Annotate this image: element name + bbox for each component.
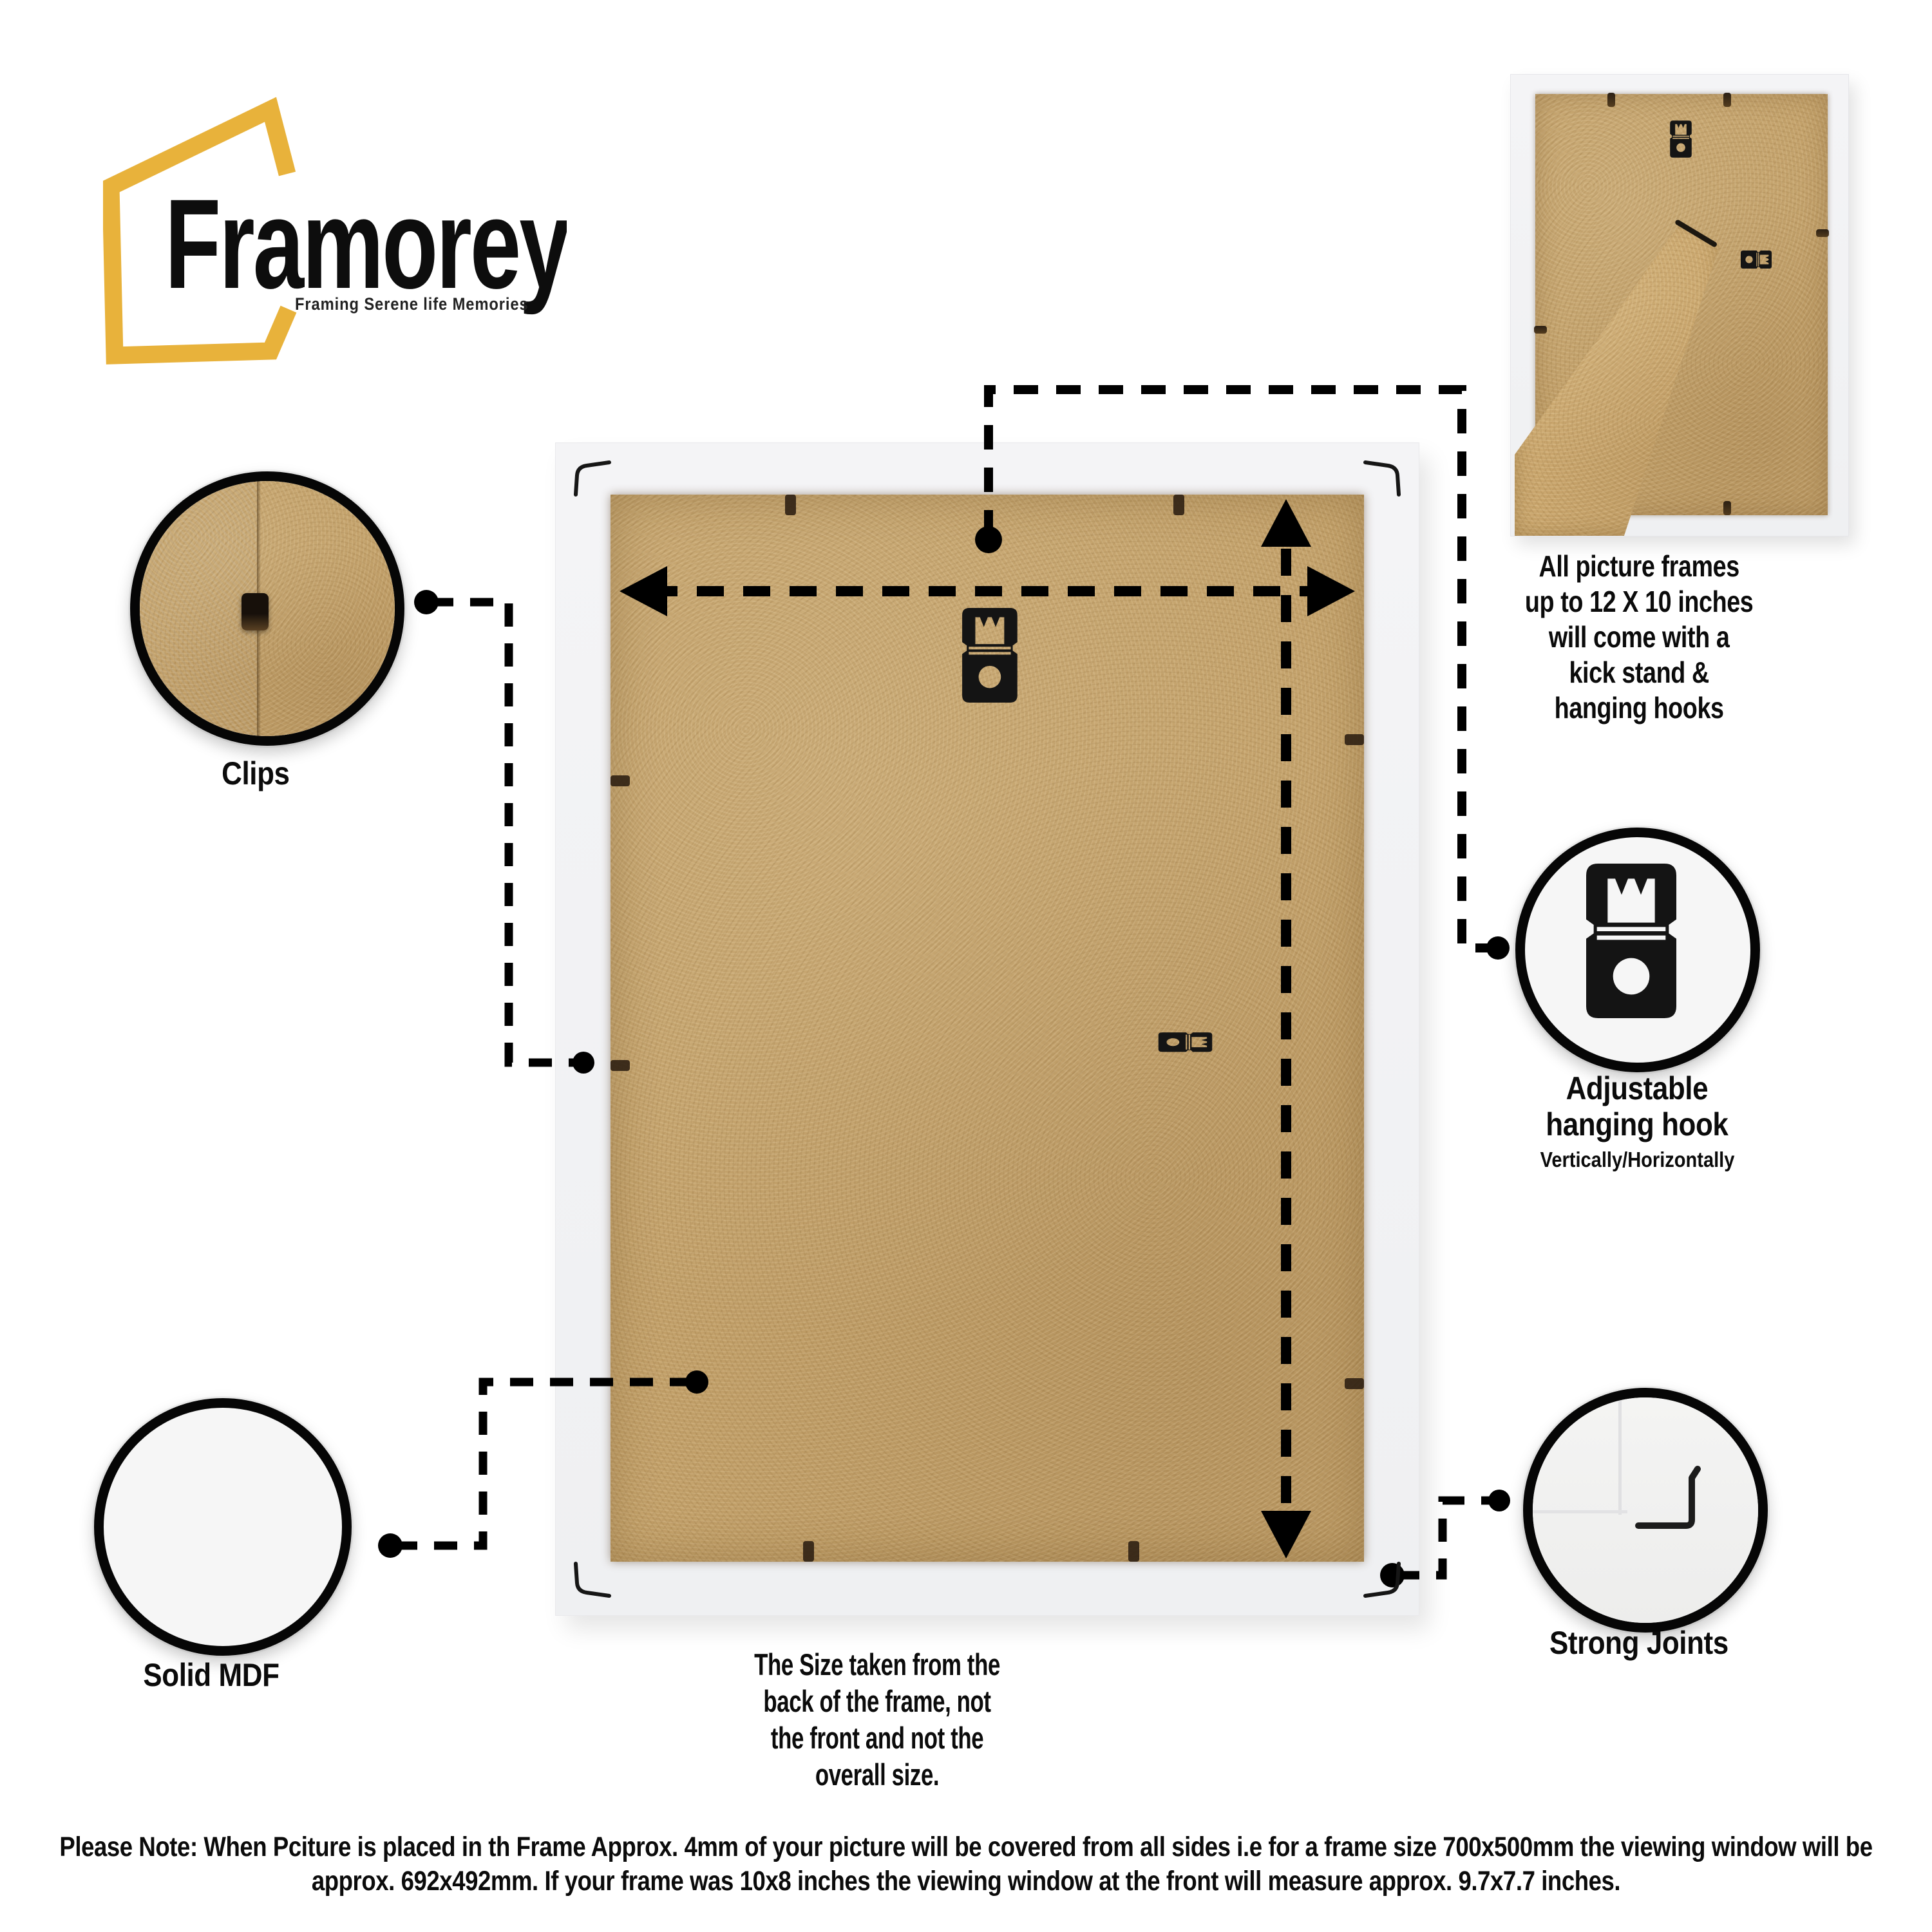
- corner-bracket-bottom-left-icon: [576, 1564, 609, 1596]
- size-note: The Size taken from the back of the fram…: [754, 1646, 1000, 1793]
- connector-strong-joints: [1396, 1501, 1494, 1575]
- clip-icon: [1345, 734, 1364, 745]
- connector-dot: [414, 590, 439, 614]
- inset-caption: All picture frames up to 12 X 10 inches …: [1525, 549, 1753, 726]
- clip-icon: [611, 1060, 630, 1071]
- staple-joint-icon: [1629, 1459, 1713, 1536]
- clips-label: Clips: [222, 755, 289, 793]
- footer-note-wrap: Please Note: When Pciture is placed in t…: [0, 1830, 1932, 1899]
- adjustable-label-wrap: Adjustable hanging hook: [1508, 1070, 1766, 1142]
- callout-circle-solid-mdf: [94, 1398, 352, 1656]
- infographic-canvas: Framorey Framing Serene life Memories: [0, 0, 1932, 1932]
- clip-icon: [785, 495, 796, 515]
- connector-dot: [573, 1052, 594, 1074]
- connector-dot: [1380, 1563, 1405, 1587]
- adjustable-sub-wrap: Vertically/Horizontally: [1508, 1148, 1766, 1173]
- connector-clips: [430, 602, 580, 1063]
- clip-icon: [803, 1541, 814, 1562]
- clip-icon: [241, 593, 269, 630]
- clip-icon: [1173, 495, 1184, 515]
- joint-mitre-line: [1618, 1397, 1622, 1515]
- solid-mdf-label-wrap: Solid MDF: [82, 1656, 340, 1694]
- size-note-wrap: The Size taken from the back of the fram…: [620, 1646, 1135, 1793]
- adjustable-hook-label: Adjustable hanging hook: [1546, 1070, 1728, 1142]
- connector-dot: [1488, 1490, 1510, 1511]
- callout-circle-clips: [130, 471, 404, 746]
- strong-joints-label: Strong Joints: [1549, 1624, 1728, 1662]
- clip-icon: [1128, 1541, 1139, 1562]
- strong-joints-label-wrap: Strong Joints: [1510, 1624, 1768, 1662]
- callout-circle-adjustable-hook: [1515, 828, 1760, 1072]
- connector-dot: [685, 1370, 708, 1394]
- hanging-hook-top-icon: [962, 608, 1018, 703]
- hanging-hook-side-icon: [1159, 1032, 1213, 1052]
- connector-adjustable-hook: [989, 390, 1495, 948]
- clips-frame-side: [140, 481, 257, 736]
- inset-caption-wrap: All picture frames up to 12 X 10 inches …: [1472, 549, 1806, 726]
- adjustable-hook-sublabel: Vertically/Horizontally: [1540, 1148, 1734, 1173]
- connector-dot: [975, 526, 1002, 553]
- callout-circle-strong-joints: [1523, 1388, 1768, 1633]
- clips-label-wrap: Clips: [127, 755, 384, 793]
- clip-icon: [1345, 1378, 1364, 1389]
- joint-mitre-line: [1533, 1510, 1627, 1513]
- connector-solid-mdf: [394, 1382, 690, 1546]
- adjustable-hanging-hook-icon: [1583, 860, 1680, 1021]
- height-arrow: [1261, 499, 1311, 1558]
- connector-dot: [378, 1533, 402, 1558]
- connector-dot: [1486, 936, 1510, 960]
- solid-mdf-label: Solid MDF: [143, 1656, 279, 1694]
- clip-icon: [611, 775, 630, 786]
- corner-bracket-top-left-icon: [576, 462, 609, 495]
- corner-bracket-top-right-icon: [1365, 462, 1399, 495]
- footer-note: Please Note: When Pciture is placed in t…: [52, 1830, 1880, 1899]
